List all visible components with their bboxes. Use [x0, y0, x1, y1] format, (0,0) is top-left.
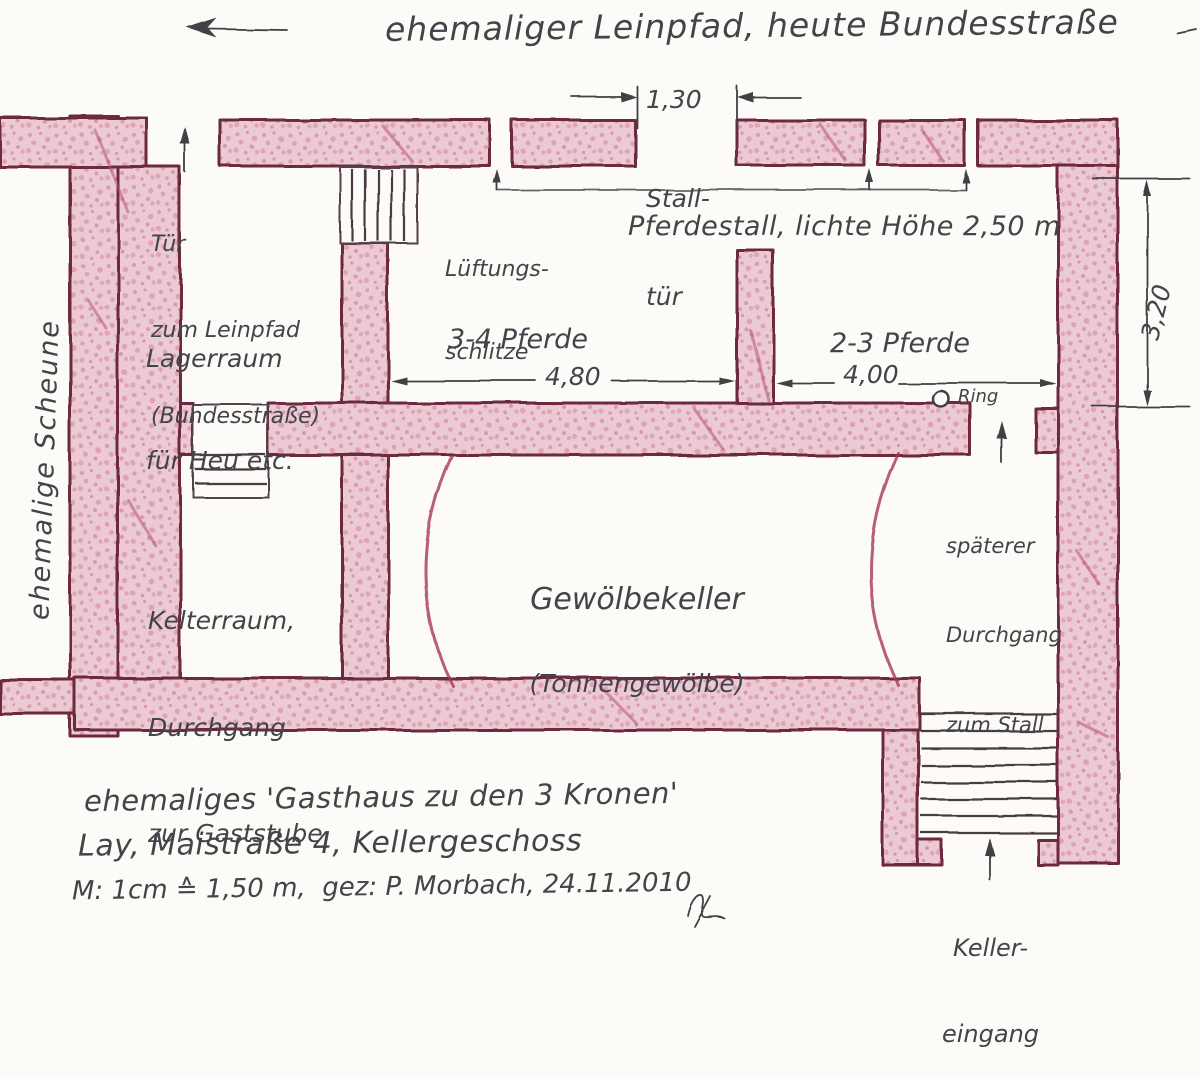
barn-wall-strip: [70, 116, 118, 736]
cellar-entrance-label: Keller- eingang: [933, 876, 1048, 1078]
dimension-4-00: 4,00: [843, 359, 899, 392]
passage-line1: späterer: [946, 532, 1062, 562]
gewoelbekeller-line1: Gewölbekeller: [512, 580, 762, 619]
top-wall-e: [978, 120, 1118, 166]
leinpfad-door-arrow: [180, 126, 190, 172]
top-left-wall-stub: [0, 118, 147, 167]
vent-label: Lüftungs- schlitze: [445, 201, 549, 394]
vent-leader-arrows: [493, 169, 970, 190]
vault-arc-left: [426, 457, 452, 685]
pferdestall-label: Pferdestall, lichte Höhe 2,50 m: [628, 209, 1061, 244]
stall-door-line2: tür: [646, 281, 710, 314]
vault-arc-right: [871, 453, 899, 685]
footer-address: Lay, Maistraße 4, Kellergeschoss: [78, 821, 583, 865]
gewoelbekeller-label: Gewölbekeller (Tonnengewölbe): [512, 538, 762, 721]
middle-wall: [268, 403, 970, 455]
vent-line1: Lüftungs-: [445, 256, 549, 284]
cellar-divider-wall: [342, 455, 388, 678]
lagerraum-label: Lagerraum für Heu etc.: [146, 274, 294, 512]
road-direction-arrow: [186, 17, 286, 37]
entrance-right-foot: [1038, 840, 1058, 865]
entrance-left-foot: [918, 840, 942, 865]
ring-marker: [933, 391, 949, 407]
storage-divider-wall: [342, 243, 388, 403]
kelterraum-line1: Kelterraum,: [148, 603, 323, 639]
cellar-entrance-line1: Keller-: [933, 934, 1048, 963]
passage-label: späterer Durchgang zum Stall: [946, 472, 1062, 770]
lagerraum-line1: Lagerraum: [146, 342, 294, 376]
vent-slits: [340, 167, 417, 243]
entrance-arrow: [985, 838, 995, 880]
leinpfad-door-line1: Tür: [151, 231, 320, 260]
passage-line3: zum Stall: [946, 711, 1062, 741]
cellar-entrance-line2: eingang: [933, 1020, 1048, 1049]
entrance-left-wall: [883, 730, 918, 865]
ring-label: Ring: [958, 385, 998, 408]
stall-right-capacity: 2-3 Pferde: [830, 326, 970, 361]
bottom-left-wall-stub: [0, 680, 75, 714]
top-wall-b: [512, 120, 635, 166]
kelterraum-line2: Durchgang: [148, 710, 323, 746]
stall-left-capacity: 3-4 Pferde: [448, 322, 588, 357]
gewoelbekeller-line2: (Tonnengewölbe): [512, 668, 762, 701]
passage-arrow: [996, 420, 1006, 462]
road-label: ehemaliger Leinpfad, heute Bundesstraße: [385, 1, 1119, 52]
passage-jamb-stub: [1035, 408, 1058, 452]
signature-paraph: [688, 895, 725, 927]
top-wall-a: [220, 120, 490, 166]
dimension-4-80: 4,80: [545, 361, 601, 394]
stable-divider-wall: [737, 250, 773, 403]
dimension-4-00-lines: [776, 379, 1056, 387]
stall-door-dimension: 1,30: [646, 84, 702, 117]
top-wall-d: [879, 120, 965, 166]
lagerraum-line2: für Heu etc.: [146, 444, 294, 478]
stray-mark: [1178, 30, 1197, 34]
right-wall: [1058, 166, 1118, 863]
passage-line2: Durchgang: [946, 621, 1062, 651]
